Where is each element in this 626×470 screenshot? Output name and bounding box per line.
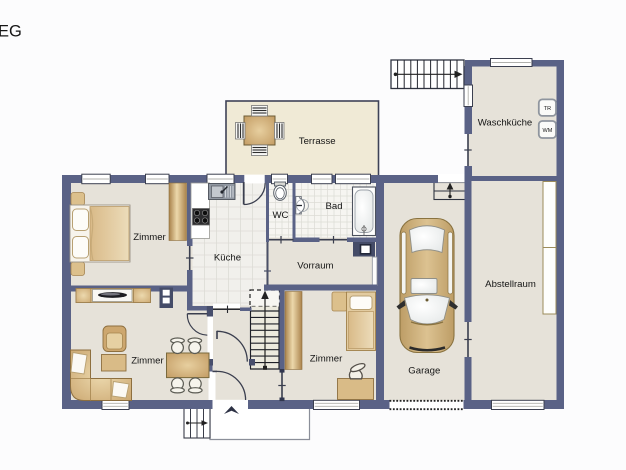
- svg-text:Terrasse: Terrasse: [299, 136, 336, 147]
- svg-text:Zimmer: Zimmer: [310, 353, 343, 364]
- svg-text:Bad: Bad: [325, 201, 342, 212]
- svg-text:Garage: Garage: [408, 366, 440, 377]
- svg-text:Abstellraum: Abstellraum: [485, 279, 536, 290]
- svg-text:Zimmer: Zimmer: [133, 232, 166, 243]
- svg-text:WC: WC: [273, 210, 289, 221]
- svg-text:Waschküche: Waschküche: [478, 118, 533, 129]
- svg-text:WM: WM: [543, 128, 553, 134]
- svg-text:Vorraum: Vorraum: [297, 261, 333, 272]
- svg-text:Zimmer: Zimmer: [131, 355, 164, 366]
- svg-text:TR: TR: [544, 106, 551, 112]
- svg-text:EG: EG: [0, 23, 22, 41]
- svg-text:Küche: Küche: [214, 253, 241, 264]
